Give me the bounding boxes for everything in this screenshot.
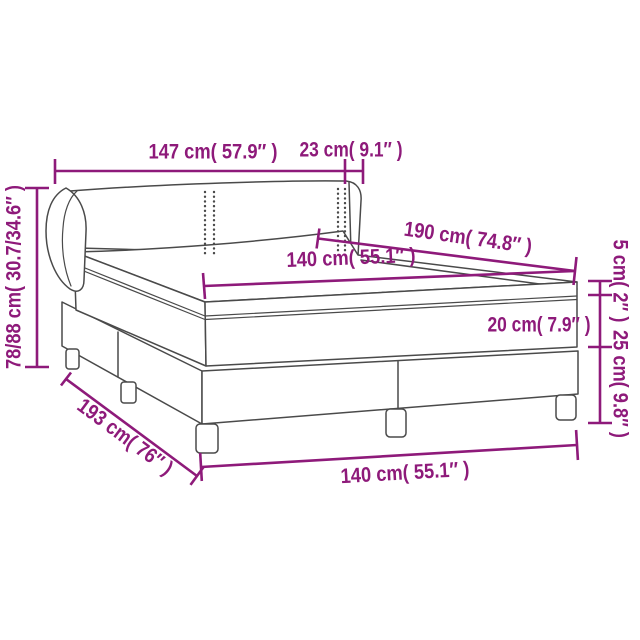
bed-leg xyxy=(386,409,406,437)
label-topper-height: 5 cm( 2″ ) xyxy=(609,240,632,323)
bed-leg xyxy=(121,382,136,403)
label-base-length: 193 cm( 76″ ) xyxy=(73,394,178,480)
dim-total-height xyxy=(25,188,49,367)
bed-leg xyxy=(556,395,576,420)
headboard-roll-wing xyxy=(46,188,86,291)
bed-diagram-svg: 147 cm( 57.9″ ) 23 cm( 9.1″ ) 190 cm( 74… xyxy=(0,0,640,640)
label-base-width: 140 cm( 55.1″ ) xyxy=(340,458,470,488)
label-wing-depth: 23 cm( 9.1″ ) xyxy=(300,139,403,162)
dim-height-stack xyxy=(588,281,612,423)
bed-leg xyxy=(66,349,79,369)
label-base-height: 25 cm( 9.8″ ) xyxy=(609,330,632,438)
label-headboard-width: 147 cm( 57.9″ ) xyxy=(149,141,278,164)
label-mattress-height: 20 cm( 7.9″ ) xyxy=(488,314,591,337)
label-total-height: 78/88 cm( 30.7/34.6″ ) xyxy=(3,185,26,369)
bed-leg xyxy=(196,424,218,453)
dimension-diagram: 147 cm( 57.9″ ) 23 cm( 9.1″ ) 190 cm( 74… xyxy=(0,0,640,640)
